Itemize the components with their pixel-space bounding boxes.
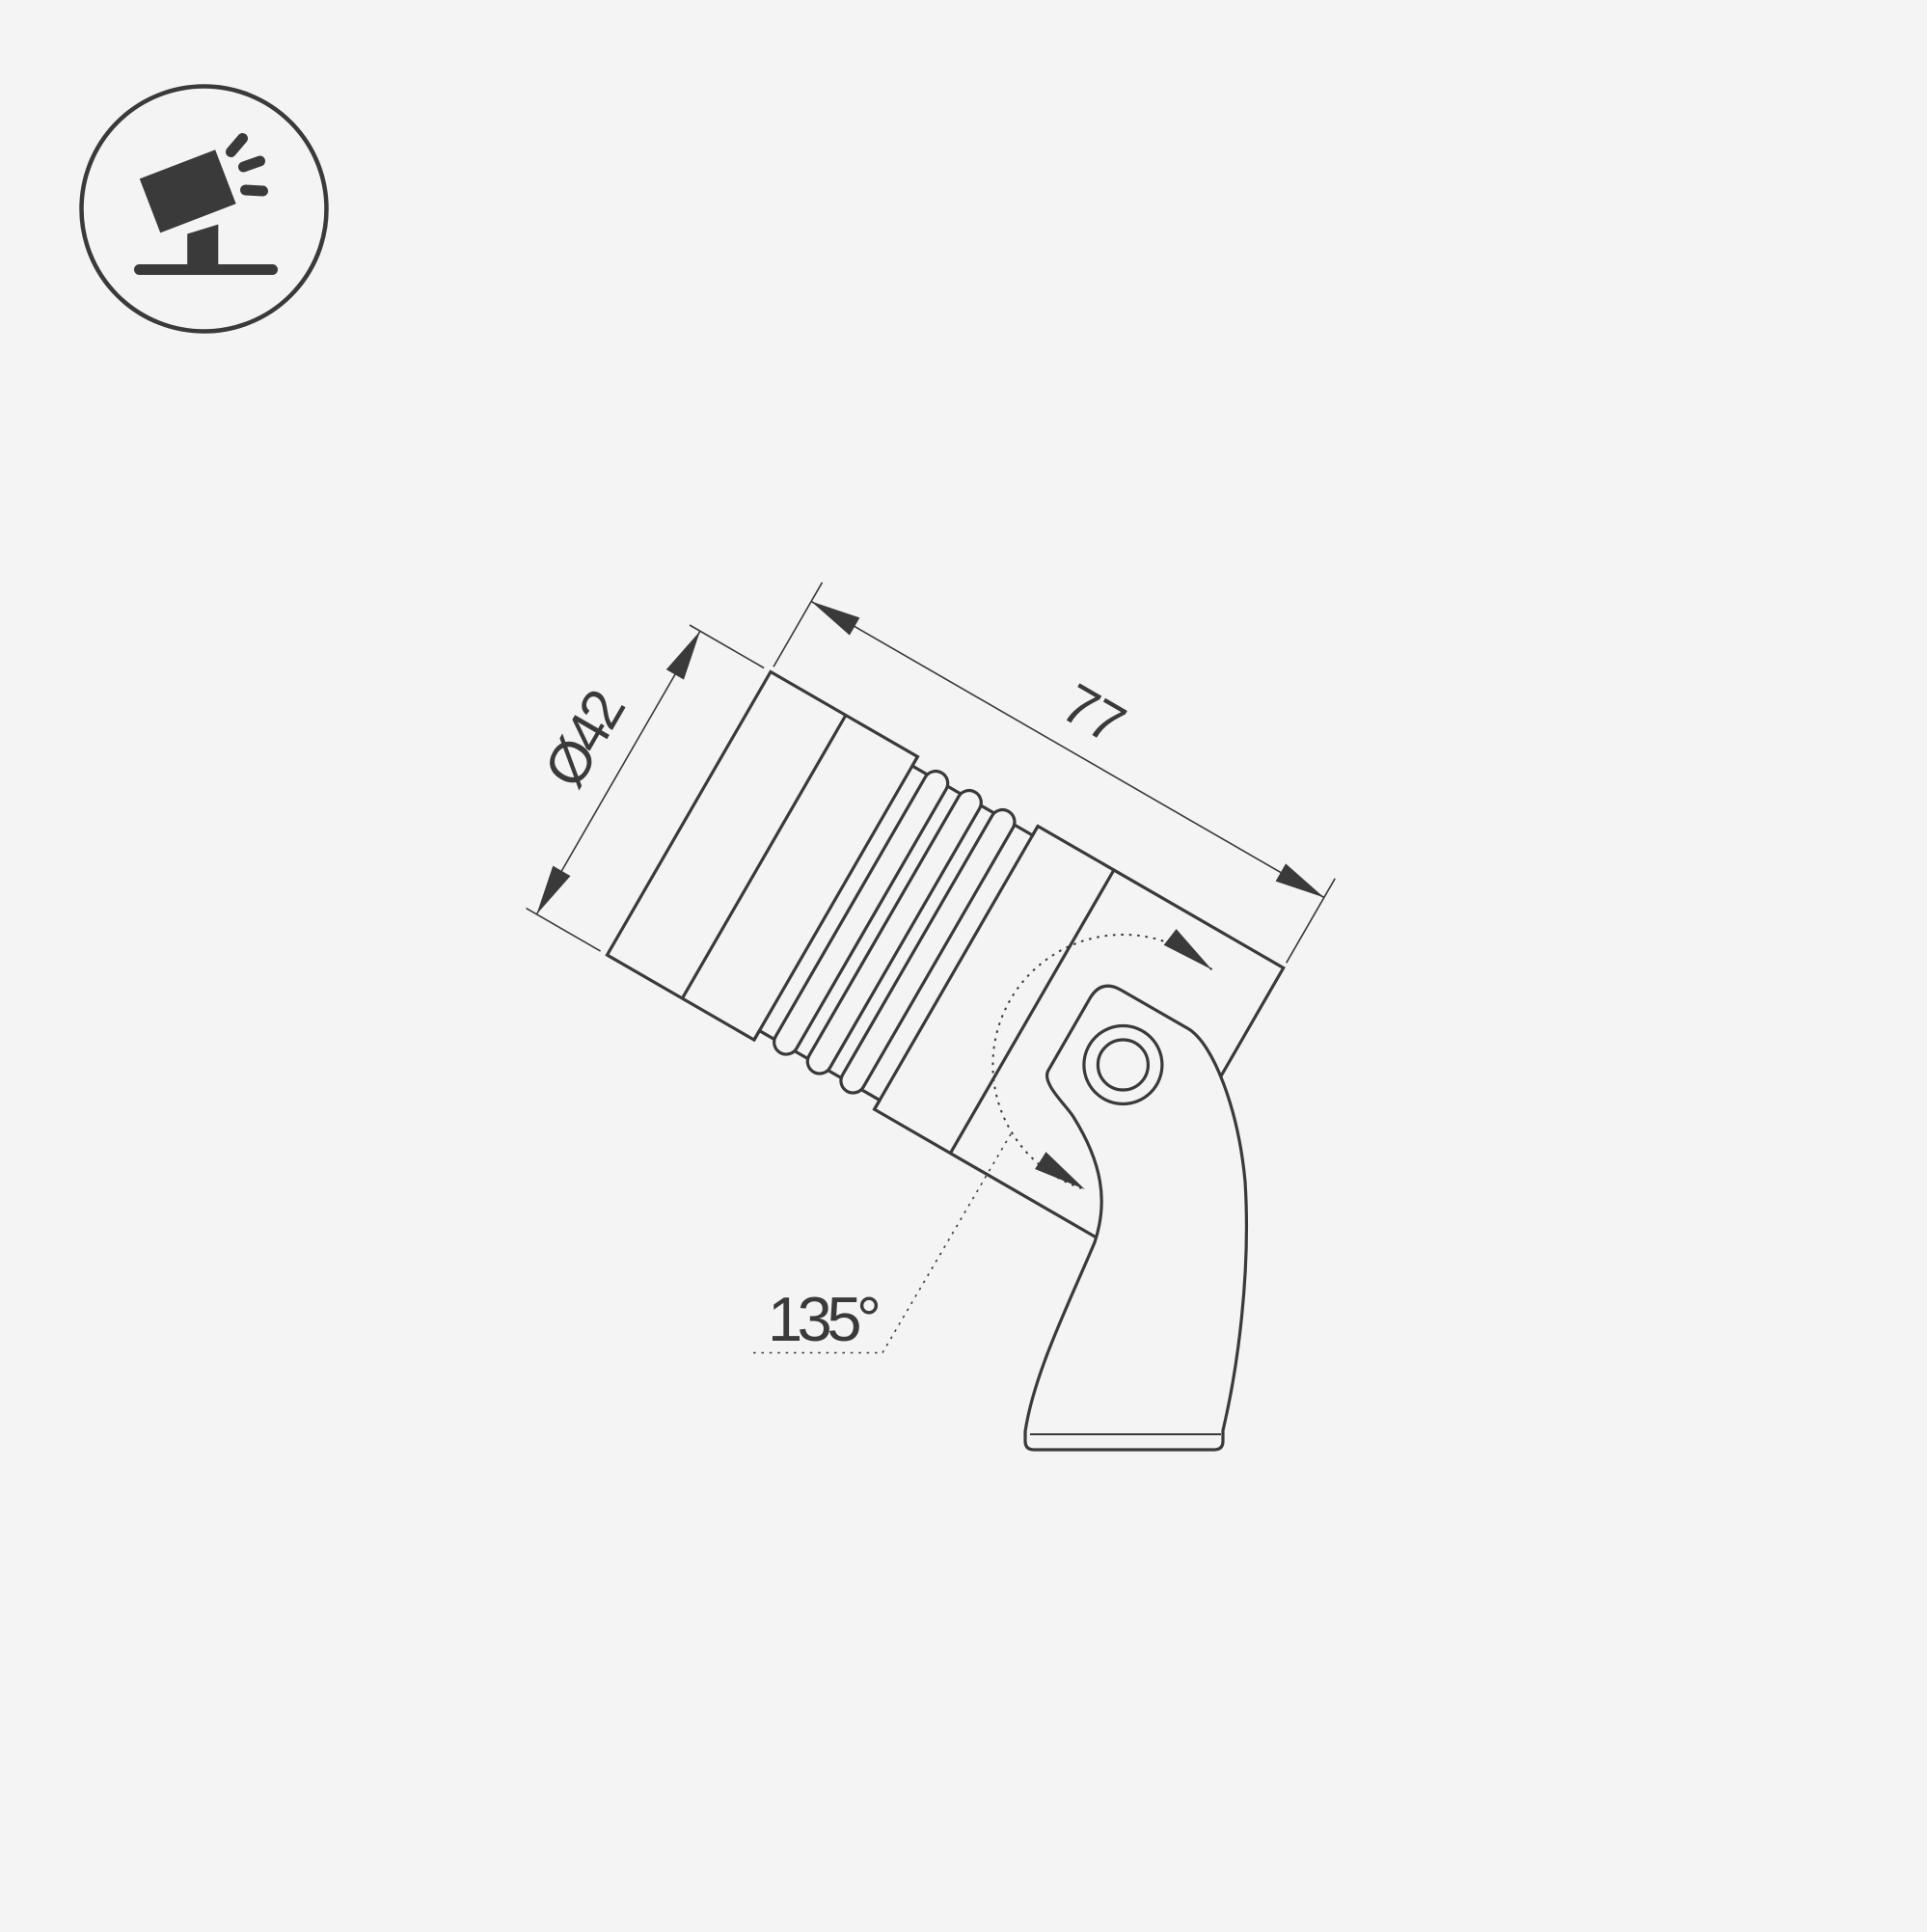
svg-text:135°: 135° — [768, 1284, 882, 1354]
